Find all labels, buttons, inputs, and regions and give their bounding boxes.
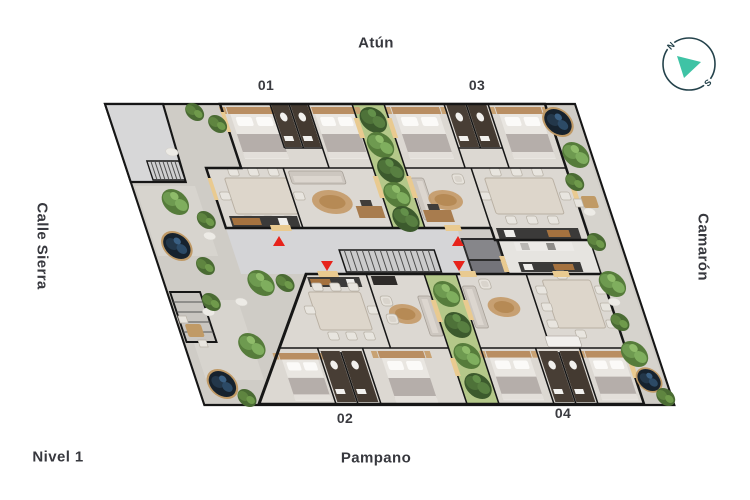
corridor-stair-icon — [339, 250, 441, 272]
street-label-camaron: Camarón — [695, 213, 712, 281]
site-plan — [105, 103, 678, 407]
floor-plan-rendering: N S — [0, 0, 750, 500]
unit-label-04: 04 — [555, 405, 571, 421]
unit-label-03: 03 — [469, 77, 485, 93]
level-label: Nivel 1 — [32, 449, 83, 466]
compass-south-label: S — [702, 77, 713, 88]
compass-needle-icon — [677, 56, 701, 78]
unit-label-01: 01 — [258, 77, 274, 93]
street-label-pampano: Pampano — [341, 450, 411, 467]
compass-icon: N S — [663, 38, 715, 90]
unit-label-02: 02 — [337, 410, 353, 426]
floor-plan-page: N S Atún Pampano Calle Sierra Camarón Ni… — [0, 0, 750, 500]
street-label-atun: Atún — [358, 35, 394, 52]
street-label-calle-sierra: Calle Sierra — [34, 202, 51, 289]
